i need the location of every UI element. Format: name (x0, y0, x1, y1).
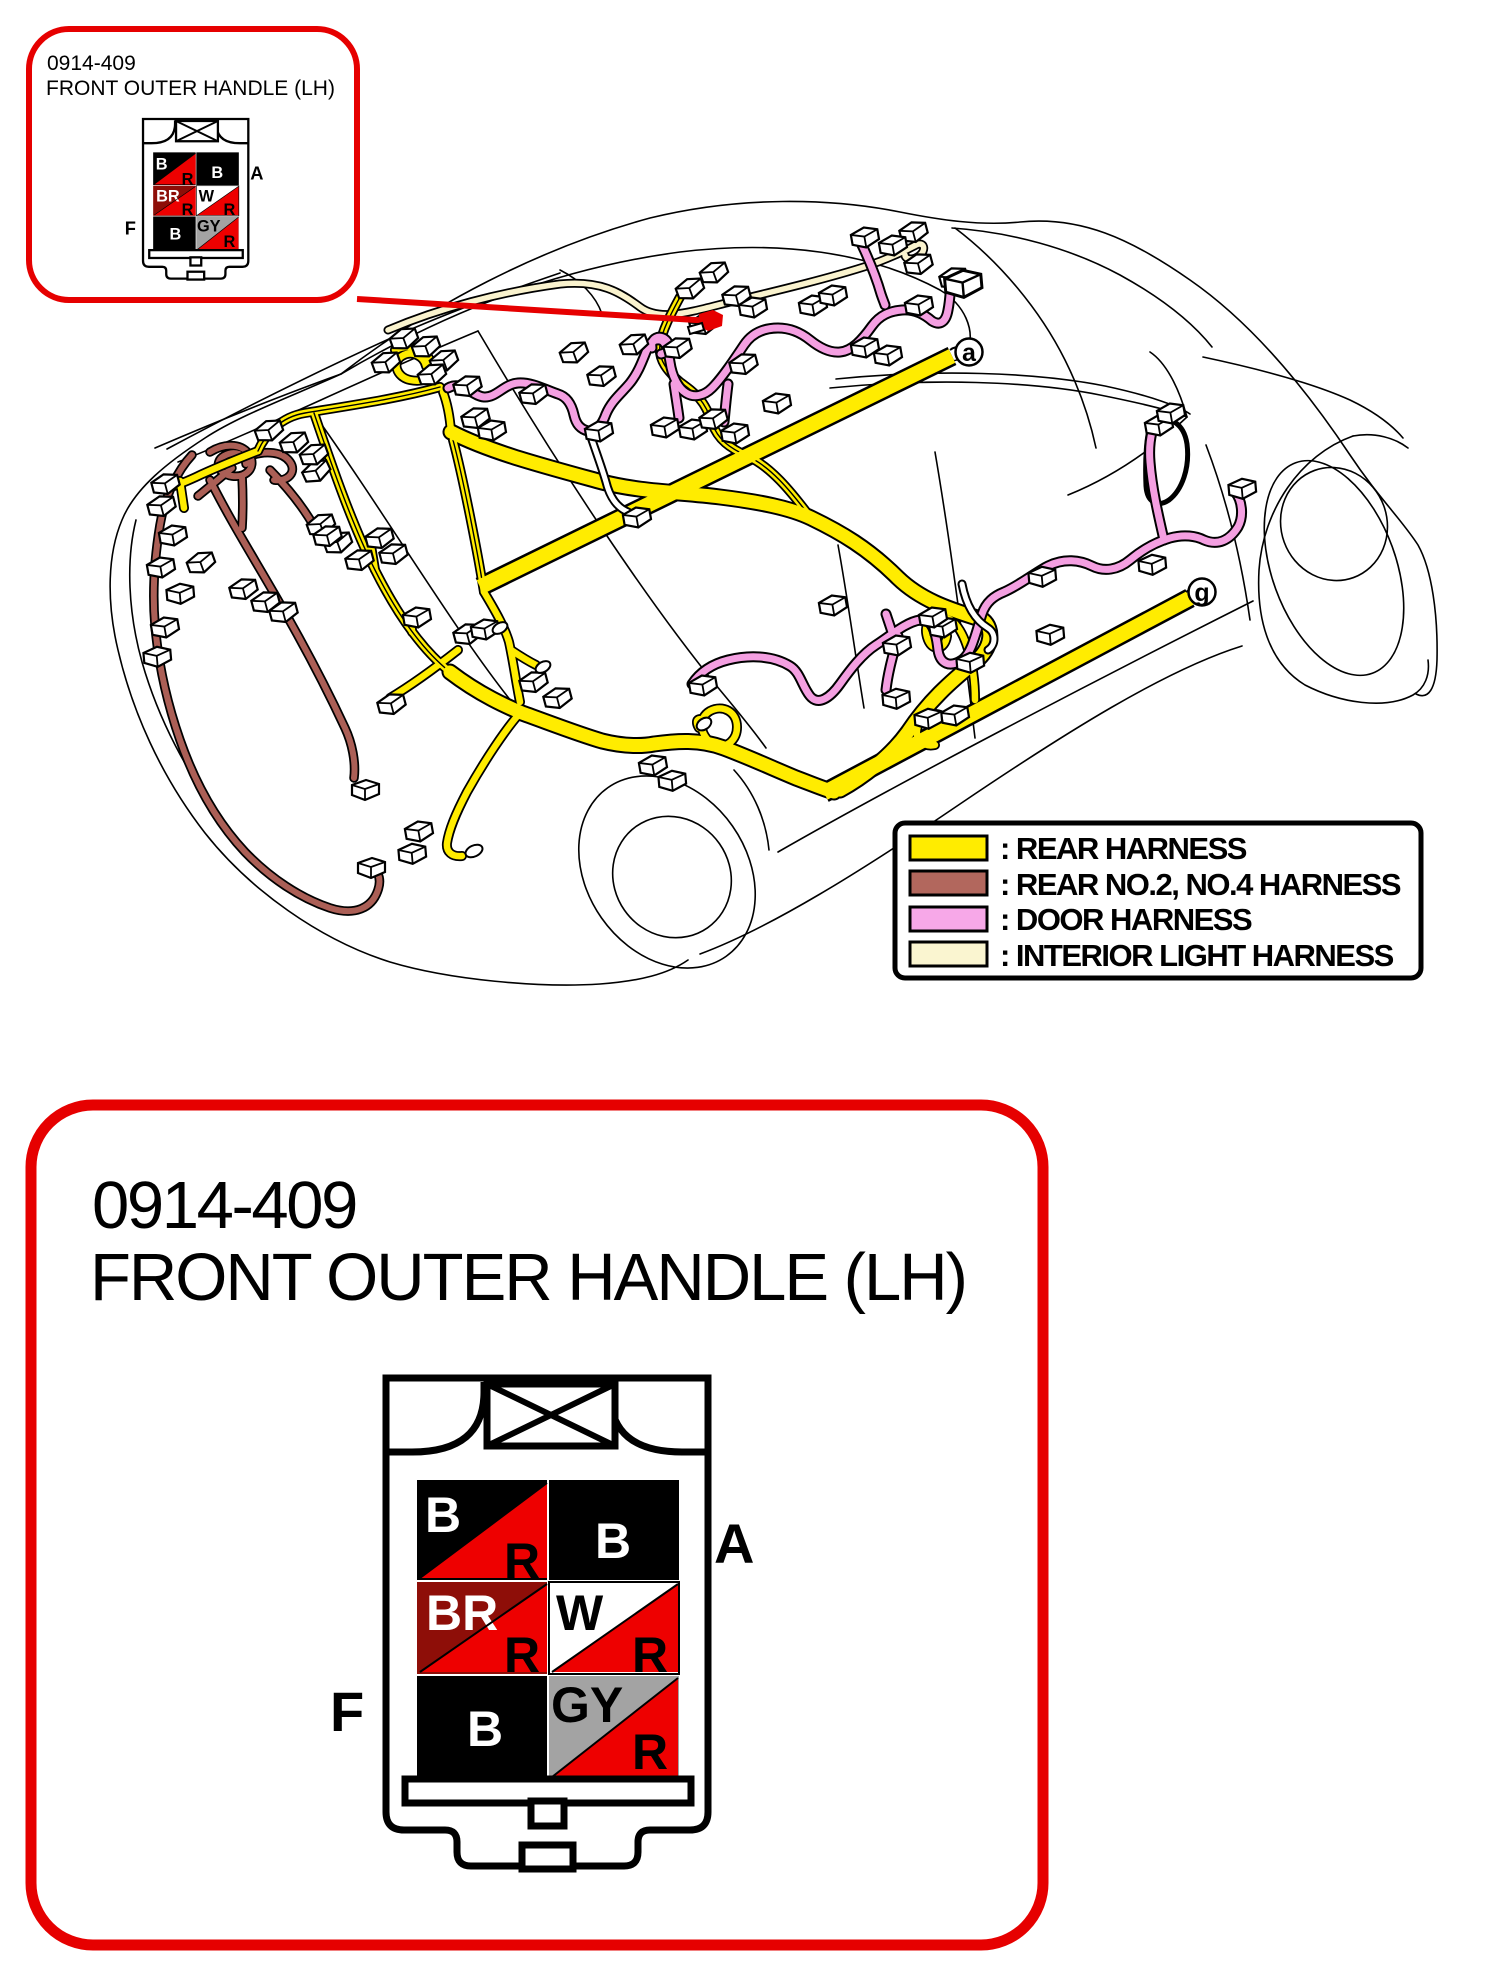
svg-text:: REAR NO.2, NO.4 HARNESS: : REAR NO.2, NO.4 HARNESS (1000, 867, 1401, 902)
svg-text:FRONT OUTER HANDLE (LH): FRONT OUTER HANDLE (LH) (90, 1240, 966, 1315)
svg-text:: DOOR HARNESS: : DOOR HARNESS (1000, 902, 1252, 937)
svg-text:a: a (962, 339, 977, 367)
svg-text:FRONT OUTER HANDLE (LH): FRONT OUTER HANDLE (LH) (46, 77, 335, 100)
svg-text:0914-409: 0914-409 (47, 52, 136, 75)
svg-text:0914-409: 0914-409 (92, 1168, 356, 1243)
svg-text:: REAR HARNESS: : REAR HARNESS (1000, 831, 1247, 866)
svg-text:: INTERIOR LIGHT HARNESS: : INTERIOR LIGHT HARNESS (1000, 938, 1394, 973)
svg-text:g: g (1194, 579, 1209, 607)
